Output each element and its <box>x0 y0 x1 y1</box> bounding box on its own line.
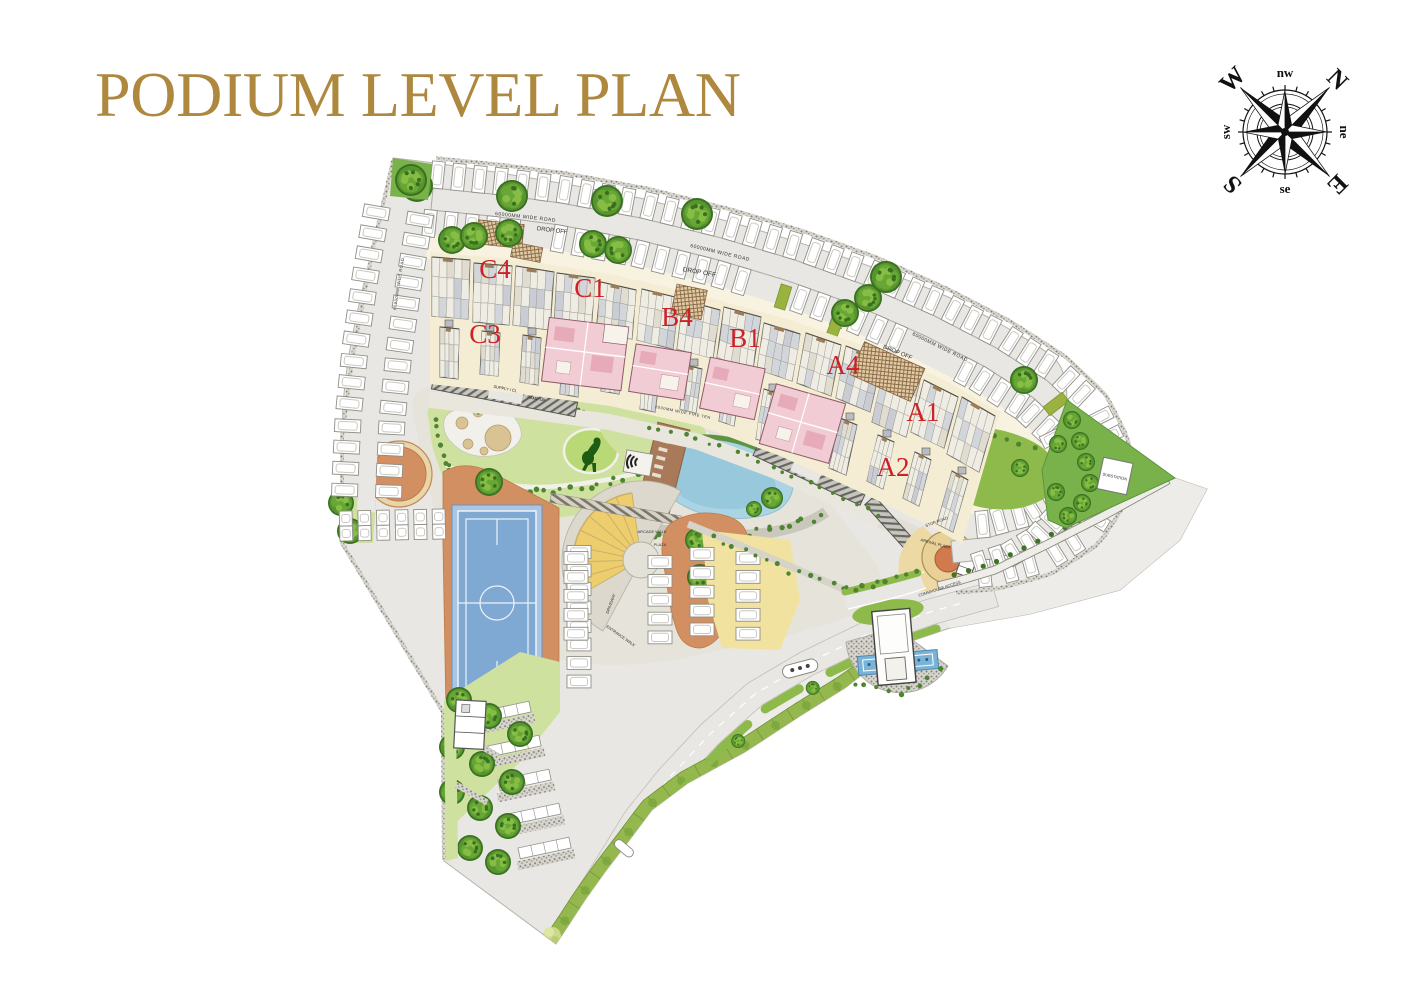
svg-text:A2: A2 <box>877 452 910 482</box>
svg-text:C1: C1 <box>574 273 606 303</box>
svg-text:B4: B4 <box>661 302 693 332</box>
svg-text:ne: ne <box>1337 126 1352 139</box>
svg-text:sw: sw <box>1218 124 1233 139</box>
svg-text:PLAZA: PLAZA <box>654 542 667 547</box>
svg-text:C4: C4 <box>479 254 511 284</box>
svg-text:A4: A4 <box>827 350 860 380</box>
svg-text:nw: nw <box>1277 65 1294 80</box>
svg-text:se: se <box>1280 181 1291 196</box>
svg-text:A1: A1 <box>907 397 940 427</box>
svg-text:B1: B1 <box>729 323 761 353</box>
svg-text:C3: C3 <box>469 319 501 349</box>
svg-text:ARCADE WALK: ARCADE WALK <box>638 529 667 534</box>
svg-text:PODIUM LEVEL PLAN: PODIUM LEVEL PLAN <box>95 59 741 130</box>
